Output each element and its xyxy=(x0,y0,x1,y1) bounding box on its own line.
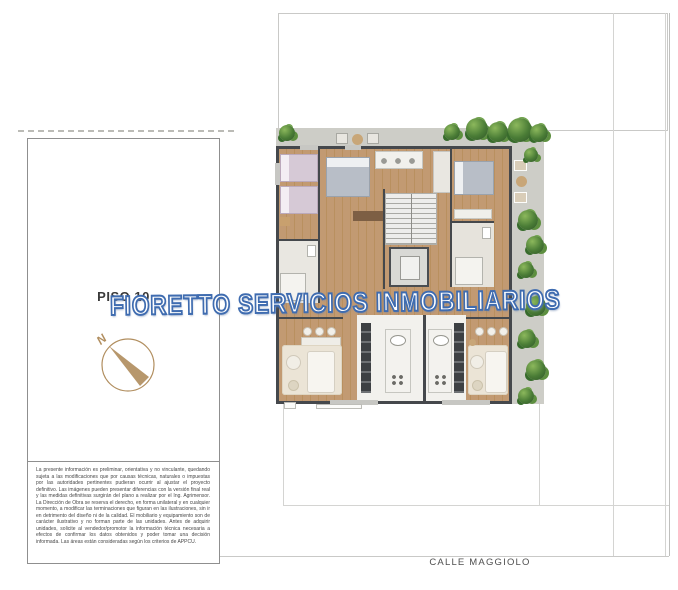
kitchen-island xyxy=(385,329,411,393)
elevator xyxy=(389,247,429,287)
floor-plan-sheet: { "watermark": { "text": "FIORETTO SERVI… xyxy=(0,0,678,590)
stairs-divider xyxy=(411,194,412,244)
desk xyxy=(353,211,385,221)
terrace-chair xyxy=(367,133,379,144)
dining-chair xyxy=(499,327,508,336)
bed xyxy=(326,157,370,197)
dresser xyxy=(454,209,492,219)
plant-icon xyxy=(508,118,532,142)
boundary-dashes xyxy=(18,130,234,132)
toilet xyxy=(482,227,491,239)
panel-divider xyxy=(28,461,219,462)
terrace-pouf xyxy=(352,134,363,145)
bathroom xyxy=(433,151,451,193)
glass-door xyxy=(442,400,490,405)
window xyxy=(300,145,318,150)
plant-icon xyxy=(518,210,538,230)
terrace-chair xyxy=(514,192,527,203)
plant-icon xyxy=(518,388,534,404)
sofa xyxy=(485,351,507,393)
toilet xyxy=(307,245,316,257)
stairs xyxy=(385,193,437,245)
floor-plan xyxy=(276,146,512,404)
survey-line-v1 xyxy=(613,13,614,556)
compass-icon: N xyxy=(88,325,166,403)
bed xyxy=(280,186,318,214)
plant-icon xyxy=(488,122,508,142)
terrace-chair xyxy=(336,133,348,144)
watermark: FIORETTO SERVICIOS INMOBILIARIOS xyxy=(110,285,561,322)
elevator-cab xyxy=(400,256,420,280)
survey-line-v2 xyxy=(665,13,666,556)
plant-icon xyxy=(524,148,538,162)
plant-icon xyxy=(526,236,544,254)
info-panel: PISO 10 N La presente información es pre… xyxy=(27,138,220,564)
nightstand xyxy=(280,217,290,226)
survey-line-h1 xyxy=(283,505,669,506)
dining-chair xyxy=(327,327,336,336)
terrace-table xyxy=(516,176,527,187)
survey-line-v4 xyxy=(283,404,284,505)
bathroom xyxy=(452,223,494,287)
disclaimer-text: La presente información es preliminar, o… xyxy=(36,467,210,545)
survey-line-v5 xyxy=(539,404,540,505)
pouf xyxy=(288,380,299,391)
kitchen-counter xyxy=(454,323,464,393)
terrace-chair xyxy=(514,160,527,171)
dining-chair xyxy=(303,327,312,336)
decor-pot xyxy=(469,339,476,346)
window xyxy=(275,163,280,185)
upper-lot-rect xyxy=(278,13,668,131)
sofa xyxy=(307,351,335,393)
street-label: CALLE MAGGIOLO xyxy=(380,557,580,568)
plant-icon xyxy=(518,262,534,278)
window xyxy=(345,145,361,150)
plant-icon xyxy=(526,360,546,380)
plant-icon xyxy=(518,330,536,348)
plant-icon xyxy=(279,125,295,141)
kitchen-island xyxy=(428,329,452,393)
plant-icon xyxy=(466,118,488,140)
laundry-room xyxy=(375,151,423,169)
armchair xyxy=(286,355,301,370)
railing xyxy=(316,404,362,409)
bed xyxy=(280,154,318,182)
wall xyxy=(466,317,509,319)
survey-line-v3 xyxy=(669,13,670,556)
bed xyxy=(454,161,494,195)
wall xyxy=(318,149,320,241)
dimension-marker xyxy=(284,402,296,409)
shower xyxy=(455,257,483,285)
kitchen-counter xyxy=(361,323,371,393)
armchair xyxy=(470,355,484,369)
pouf xyxy=(472,380,483,391)
compass-north-label: N xyxy=(94,331,110,348)
dining-chair xyxy=(475,327,484,336)
plant-icon xyxy=(530,124,548,142)
plant-icon xyxy=(444,124,460,140)
dining-chair xyxy=(487,327,496,336)
dining-chair xyxy=(315,327,324,336)
